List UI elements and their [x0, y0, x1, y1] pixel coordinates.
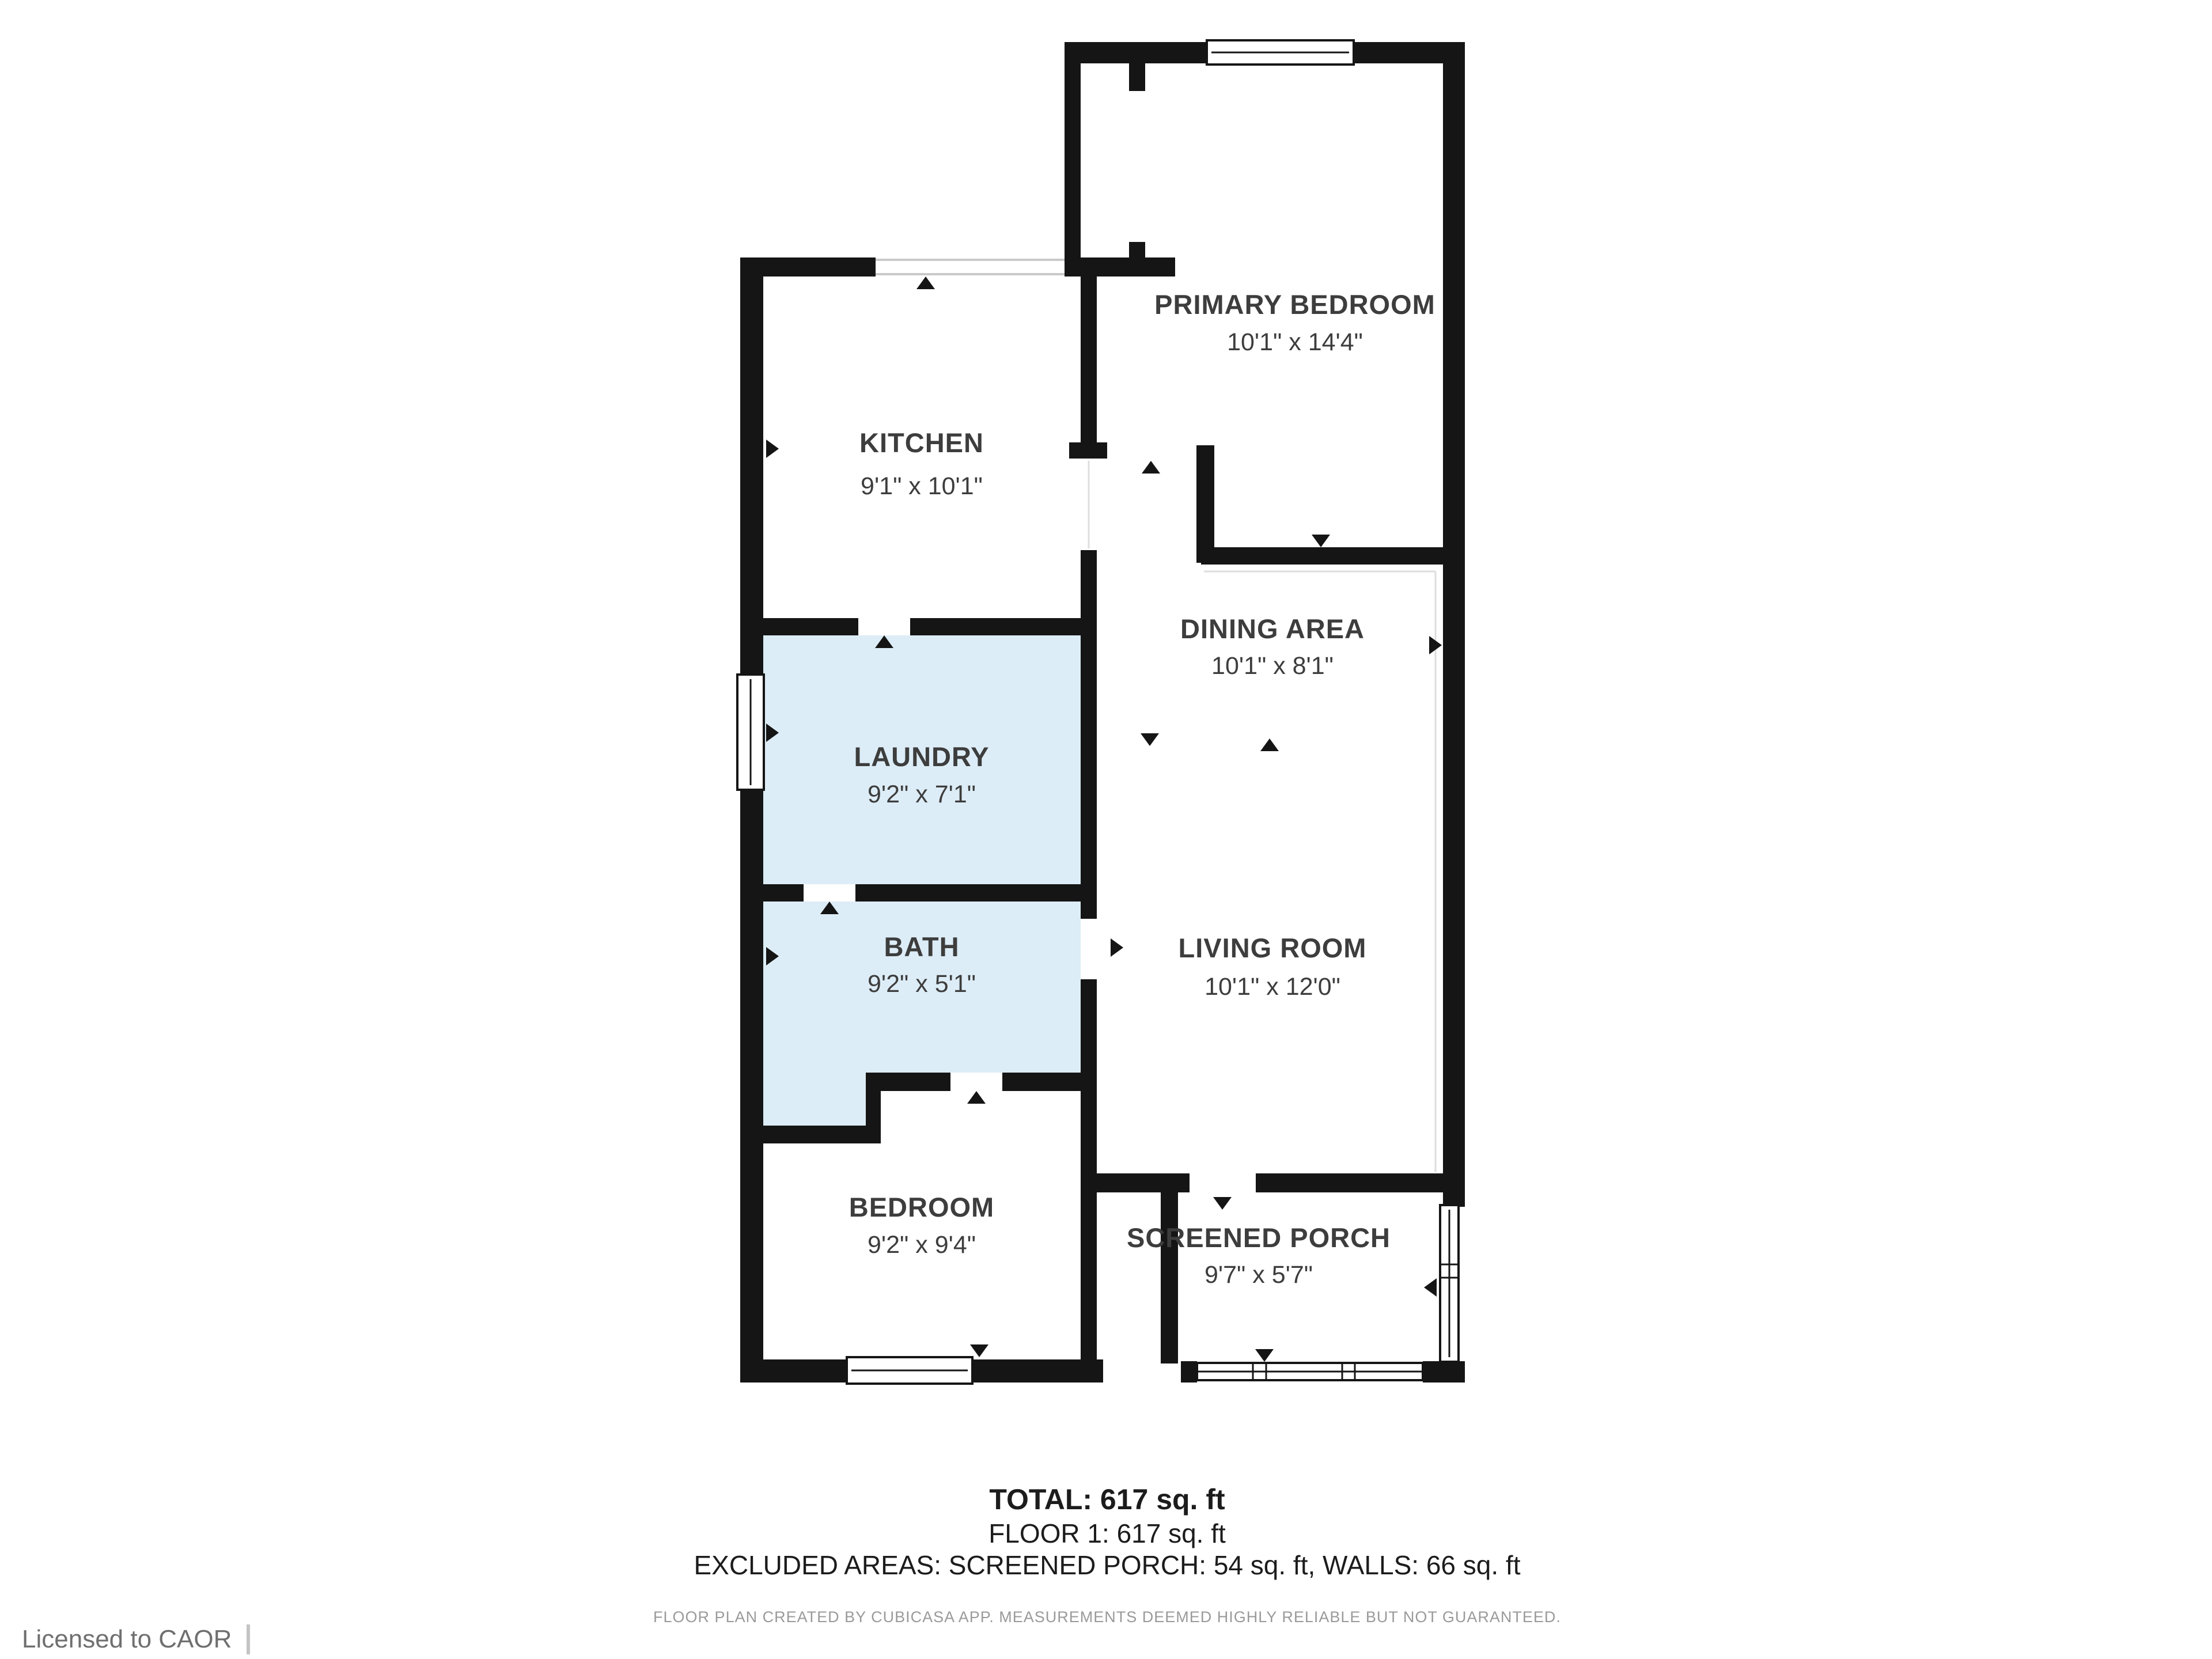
license-divider — [247, 1624, 250, 1654]
summary-floor: FLOOR 1: 617 sq. ft — [988, 1518, 1226, 1548]
bath-door-arrow — [1111, 938, 1123, 957]
wet-room-fills — [756, 635, 1081, 1126]
room-label-primary-bedroom: PRIMARY BEDROOM 10'1" x 14'4" — [1154, 289, 1435, 356]
porch-door-arrow — [1213, 1197, 1232, 1210]
bedroom-name: BEDROOM — [849, 1192, 994, 1222]
porch-bottom-screen — [1197, 1363, 1423, 1380]
summary-total: TOTAL: 617 sq. ft — [989, 1483, 1225, 1516]
dining-living-arrow-left — [1141, 733, 1159, 746]
room-label-bedroom: BEDROOM 9'2" x 9'4" — [849, 1192, 994, 1259]
room-label-living: LIVING ROOM 10'1" x 12'0" — [1179, 933, 1367, 1001]
interior-guides — [1089, 461, 1435, 1172]
dining-dims: 10'1" x 8'1" — [1211, 652, 1334, 680]
bedroom-window-arrow — [970, 1344, 988, 1357]
bedroom-dims: 9'2" x 9'4" — [868, 1231, 976, 1259]
bedroom-window — [847, 1357, 972, 1384]
kitchen-dims: 9'1" x 10'1" — [861, 472, 983, 500]
dining-living-arrow-right — [1260, 738, 1279, 751]
bath-name: BATH — [884, 931, 959, 962]
living-name: LIVING ROOM — [1179, 933, 1367, 963]
kitchen-entry-arrow — [916, 276, 935, 289]
room-label-dining: DINING AREA 10'1" x 8'1" — [1180, 613, 1365, 680]
primary-bedroom-name: PRIMARY BEDROOM — [1154, 289, 1435, 320]
floor-plan-svg: KITCHEN 9'1" x 10'1" LAUNDRY 9'2" x 7'1"… — [0, 0, 2212, 1659]
porch-screen-arrow — [1424, 1278, 1437, 1297]
footer: Licensed to CAOR — [22, 1624, 250, 1654]
bath-dims: 9'2" x 5'1" — [868, 970, 976, 998]
fine-print: FLOOR PLAN CREATED BY CUBICASA APP. MEAS… — [653, 1608, 1561, 1626]
dining-name: DINING AREA — [1180, 613, 1365, 644]
room-labels: KITCHEN 9'1" x 10'1" LAUNDRY 9'2" x 7'1"… — [849, 289, 1435, 1289]
floor-plan-page: KITCHEN 9'1" x 10'1" LAUNDRY 9'2" x 7'1"… — [0, 0, 2212, 1659]
license-text: Licensed to CAOR — [22, 1625, 232, 1653]
area-summary: TOTAL: 617 sq. ft FLOOR 1: 617 sq. ft EX… — [653, 1483, 1561, 1626]
living-dims: 10'1" x 12'0" — [1205, 973, 1340, 1001]
porch-window-arrow — [1255, 1349, 1274, 1362]
laundry-dims: 9'2" x 7'1" — [868, 781, 976, 808]
laundry-name: LAUNDRY — [854, 741, 989, 772]
kitchen-left-arrow — [766, 440, 779, 458]
kitchen-name: KITCHEN — [859, 427, 984, 458]
hall-dining-arrow — [1142, 461, 1160, 474]
room-label-kitchen: KITCHEN 9'1" x 10'1" — [859, 427, 984, 500]
primary-bedroom-window — [1207, 40, 1354, 65]
primary-bedroom-arrow — [1312, 535, 1330, 547]
laundry-window — [737, 675, 764, 790]
primary-bedroom-dims: 10'1" x 14'4" — [1227, 328, 1363, 356]
porch-name: SCREENED PORCH — [1127, 1222, 1391, 1253]
porch-right-screen — [1440, 1205, 1459, 1362]
bedroom-door-arrow — [967, 1091, 986, 1104]
porch-dims: 9'7" x 5'7" — [1205, 1261, 1313, 1289]
summary-excluded: EXCLUDED AREAS: SCREENED PORCH: 54 sq. f… — [694, 1550, 1521, 1580]
